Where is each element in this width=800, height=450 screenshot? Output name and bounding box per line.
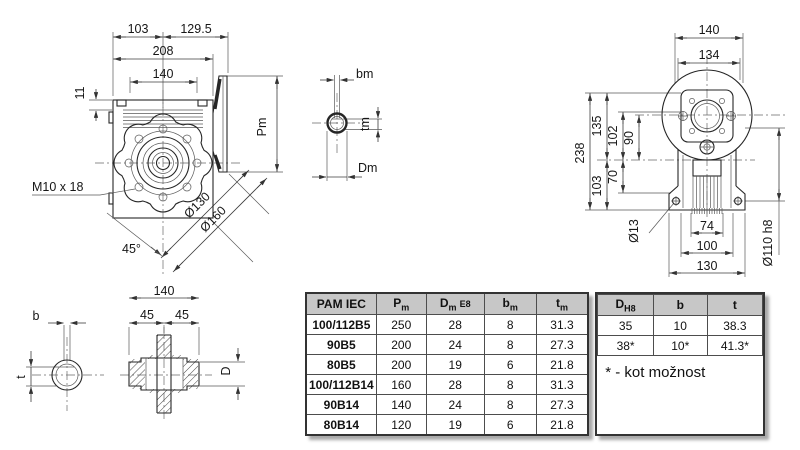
table-cell: 10 [653,316,707,336]
table-cell: 38* [598,336,654,356]
table-cell: 100/112B14 [306,375,376,395]
table-cell: 41.3* [707,336,763,356]
table-cell: 38.3 [707,316,763,336]
table-cell: 35 [598,316,654,336]
dim-label-100: 100 [697,239,718,253]
flange-section-fill [215,79,220,169]
dim-label-d: D [219,366,233,375]
table-cell: 90B14 [306,395,376,415]
table-cell: 24 [426,335,484,355]
dimension-lines [590,38,779,273]
table-cell: 31.3 [536,375,588,395]
dim-label-135: 135 [590,116,604,137]
dim-label-tm: tm [358,117,372,131]
table-cell: 19 [426,415,484,436]
table-row: 80B5 200 19 6 21.8 [306,355,588,375]
table-cell: 31.3 [536,315,588,335]
gearbox-side-view-drawing: 140 134 238 135 103 102 70 90 Ø13 74 100… [545,5,800,305]
table-cell: 10* [653,336,707,356]
column-header-dm-e8: DmE8 [426,293,484,315]
table-row: 35 10 38.3 [598,316,763,336]
table-cell: 8 [484,335,536,355]
table-cell: 140 [376,395,426,415]
table-cell: 100/112B5 [306,315,376,335]
table-header-row: DH8 b t [598,295,763,316]
output-bore-table: DH8 b t 35 10 38.3 38* 10* 41.3* [597,294,763,356]
dimension-tables: PAM IEC Pm DmE8 bm tm 100/112B5 250 28 8… [305,292,765,436]
table-cell: 80B14 [306,415,376,436]
table-cell: 21.8 [536,355,588,375]
table-cell: 6 [484,355,536,375]
table-cell: 160 [376,375,426,395]
dim-label-90: 90 [622,131,636,145]
dim-label-103: 103 [590,176,604,197]
table-row: 38* 10* 41.3* [598,336,763,356]
table-row: 90B14 140 24 8 27.3 [306,395,588,415]
dim-label-103: 103 [128,22,149,36]
dim-label-208: 208 [153,44,174,58]
table-cell: 28 [426,315,484,335]
table-cell: 27.3 [536,335,588,355]
output-shaft-drawing: b t 140 45 45 D [10,285,300,450]
dimension-lines [96,37,277,272]
dim-label-d13: Ø13 [627,219,641,243]
column-header-t: t [707,295,763,316]
center-lines [95,90,243,277]
dim-label-45-left: 45 [140,308,154,322]
table-cell: 8 [484,395,536,415]
thread-callout-label: M10 x 18 [32,180,83,194]
table-cell: 250 [376,315,426,335]
table-cell: 200 [376,355,426,375]
dim-label-dm: Dm [358,161,377,175]
column-header-bm: bm [484,293,536,315]
column-header-tm: tm [536,293,588,315]
column-header-d-h8: DH8 [598,295,654,316]
table-cell: 27.3 [536,395,588,415]
dim-label-140: 140 [154,285,175,298]
dim-label-129-5: 129.5 [180,22,211,36]
dim-label-bm: bm [356,67,373,81]
column-header-b: b [653,295,707,316]
table-cell: 24 [426,395,484,415]
table-row: 100/112B5 250 28 8 31.3 [306,315,588,335]
dim-label-d110h8: Ø110 h8 [761,219,775,266]
dim-label-134: 134 [699,48,720,62]
table-row: 80B14 120 19 6 21.8 [306,415,588,436]
table-cell: 6 [484,415,536,436]
table-cell: 19 [426,355,484,375]
table-cell: 8 [484,375,536,395]
hub-section [129,335,199,413]
table-cell: 200 [376,335,426,355]
dim-label-70: 70 [606,170,620,184]
dim-label-140: 140 [699,23,720,37]
table-cell: 90B5 [306,335,376,355]
table-row: 100/112B14 160 28 8 31.3 [306,375,588,395]
dim-label-74: 74 [700,219,714,233]
technical-drawing-page: 103 129.5 208 140 11 Pm M10 x 18 Ø130 Ø1… [0,0,800,450]
extension-lines [585,33,785,277]
gearbox-front-view-drawing: 103 129.5 208 140 11 Pm M10 x 18 Ø130 Ø1… [10,5,295,290]
pam-iec-table: PAM IEC Pm DmE8 bm tm 100/112B5 250 28 8… [305,292,589,436]
table-cell: 120 [376,415,426,436]
table-row: 90B5 200 24 8 27.3 [306,335,588,355]
dim-label-45-right: 45 [175,308,189,322]
table-cell: 28 [426,375,484,395]
dim-label-t: t [14,375,28,379]
output-bore-table-box: DH8 b t 35 10 38.3 38* 10* 41.3* * - kot… [595,292,765,436]
motor-shaft-section-drawing: bm tm Dm [300,55,470,235]
table-cell: 21.8 [536,415,588,436]
column-header-pam-iec: PAM IEC [306,293,376,315]
column-header-pm: Pm [376,293,426,315]
option-note: * - kot možnost [597,356,763,434]
dim-label-130: 130 [697,259,718,273]
extension-lines [89,32,283,262]
dim-label-b: b [33,309,40,323]
table-cell: 80B5 [306,355,376,375]
housing-details [671,98,743,214]
center-lines [312,93,364,155]
table-cell: 8 [484,315,536,335]
dim-label-pm: Pm [255,118,269,137]
dim-label-238: 238 [573,143,587,164]
dim-label-140: 140 [153,67,174,81]
table-header-row: PAM IEC Pm DmE8 bm tm [306,293,588,315]
dim-label-45deg: 45° [122,242,141,256]
dim-label-102: 102 [606,126,620,147]
dim-label-11: 11 [73,86,87,99]
